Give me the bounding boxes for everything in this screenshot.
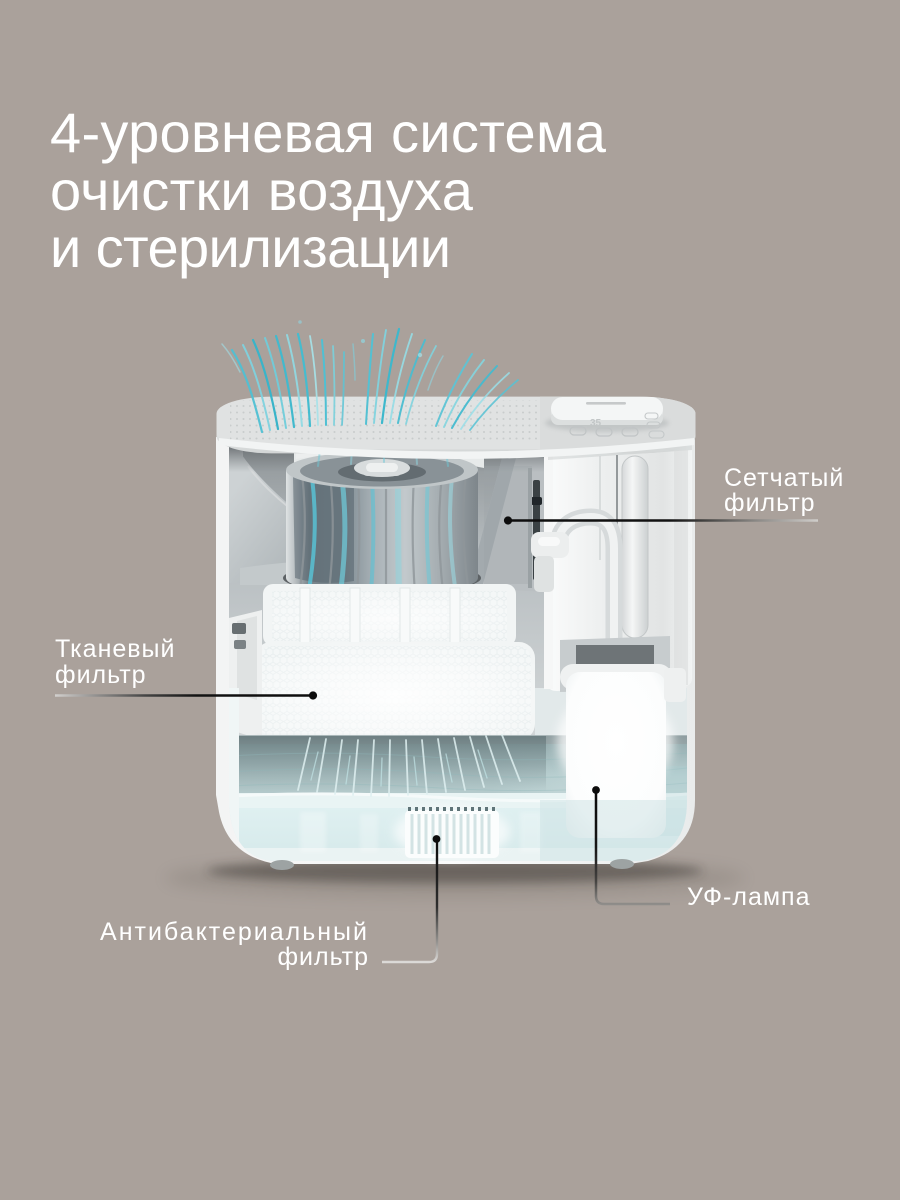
svg-text:35: 35 <box>590 418 602 429</box>
svg-text:Сетчатый: Сетчатый <box>724 464 844 492</box>
svg-text:очистки воздуха: очистки воздуха <box>50 159 474 222</box>
svg-text:фильтр: фильтр <box>724 489 816 517</box>
svg-text:фильтр: фильтр <box>55 661 147 689</box>
svg-text:и стерилизации: и стерилизации <box>50 216 450 279</box>
svg-text:4-уровневая система: 4-уровневая система <box>50 101 607 164</box>
svg-text:фильтр: фильтр <box>277 943 369 971</box>
svg-text:УФ-лампа: УФ-лампа <box>687 883 811 911</box>
svg-text:Тканевый: Тканевый <box>55 635 176 663</box>
svg-text:Антибактериальный: Антибактериальный <box>100 918 369 946</box>
